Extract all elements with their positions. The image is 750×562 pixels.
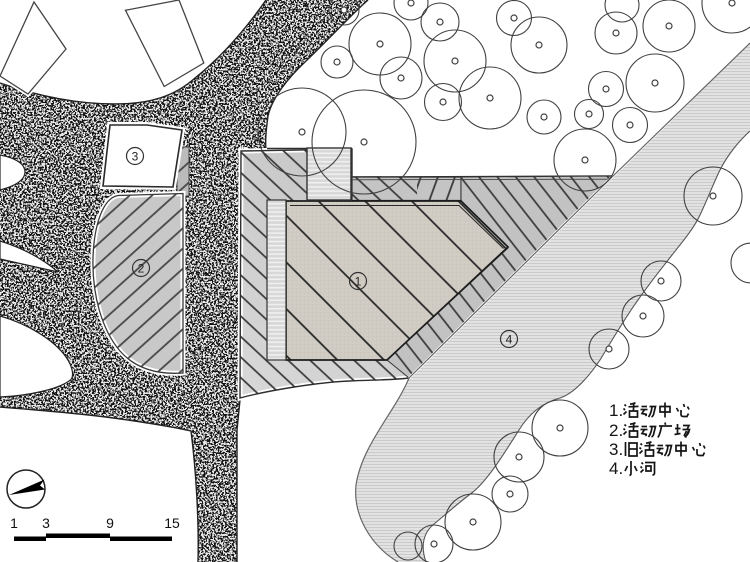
svg-text:3: 3 bbox=[132, 150, 139, 164]
svg-text:4: 4 bbox=[506, 333, 513, 347]
svg-text:9: 9 bbox=[106, 515, 114, 531]
svg-text:2: 2 bbox=[138, 262, 145, 276]
svg-text:1: 1 bbox=[355, 275, 362, 289]
svg-text:15: 15 bbox=[164, 515, 180, 531]
svg-text:3.: 3. bbox=[609, 440, 623, 459]
svg-text:1: 1 bbox=[10, 515, 18, 531]
svg-text:4.: 4. bbox=[609, 459, 623, 478]
svg-text:3: 3 bbox=[42, 515, 50, 531]
svg-text:1.: 1. bbox=[609, 401, 623, 420]
svg-text:2.: 2. bbox=[609, 421, 623, 440]
